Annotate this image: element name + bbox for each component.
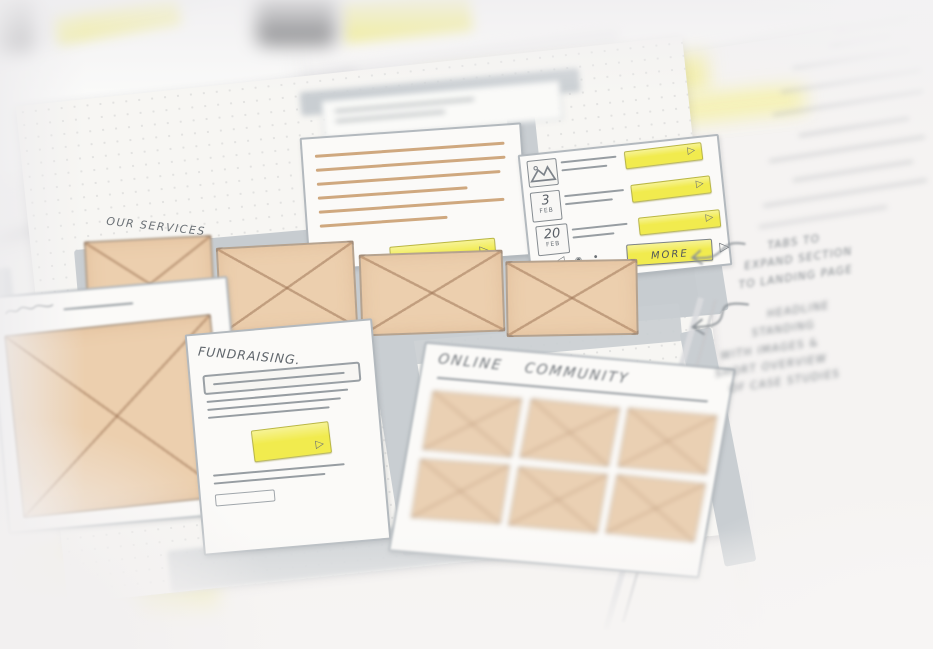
small-field-sketch [215, 489, 276, 506]
image-placeholder [359, 250, 506, 337]
community-panel: ONLINE COMMUNITY [388, 342, 736, 579]
sketch-line [213, 372, 345, 385]
event-date-badge: 3 FEB [530, 190, 563, 223]
sketch-line [561, 165, 607, 172]
grid-image-placeholder [411, 458, 510, 524]
text-placeholder-line [315, 142, 505, 158]
sketch-line [335, 111, 445, 123]
grid-image-placeholder [422, 390, 522, 457]
community-grid [406, 390, 717, 563]
logo-scribble [3, 301, 56, 317]
dark-blur-object [0, 0, 30, 50]
sketch-line [572, 232, 614, 238]
fundraising-title: FUNDRAISING. [198, 344, 302, 368]
margin-note-bottom: HEADLINE STANDING WITH IMAGES & SHORT OV… [732, 298, 841, 397]
text-placeholder-line [317, 170, 501, 186]
dark-blur-object [256, 0, 336, 44]
sketch-line [63, 302, 133, 310]
sketch-line [564, 189, 624, 197]
text-placeholder-line [320, 216, 448, 228]
sketch-line [335, 98, 475, 112]
highlighted-donate-button: ▷ [251, 421, 332, 462]
text-placeholder-line [318, 186, 468, 199]
grid-image-placeholder [508, 466, 608, 533]
image-placeholder [505, 259, 638, 337]
sketch-line [561, 156, 617, 164]
grid-image-placeholder [519, 398, 620, 467]
more-button-label: MORE [651, 248, 689, 262]
sketch-line [572, 223, 628, 231]
grid-image-placeholder [617, 408, 717, 475]
community-title: ONLINE COMMUNITY [437, 351, 631, 387]
photo-canvas: ▷ ▷ 3 FEB ▷ 20 FEB ▷ ◁ ◉ • [0, 0, 933, 649]
text-placeholder-line [319, 198, 505, 214]
arrow-right-icon: ▷ [705, 212, 714, 224]
event-date-badge: 20 FEB [535, 223, 570, 256]
grid-image-placeholder [605, 474, 706, 543]
highlighted-button: ▷ [624, 142, 704, 169]
image-placeholder-icon [526, 158, 559, 188]
text-placeholder-line [316, 156, 506, 172]
highlighted-button: ▷ [630, 175, 712, 203]
fundraising-panel: FUNDRAISING. ▷ [185, 318, 392, 556]
arrow-right-icon: ▷ [695, 178, 704, 190]
sketch-line [565, 198, 613, 205]
annotation-arrow [685, 234, 751, 274]
highlighted-button: ▷ [638, 209, 721, 235]
arrow-right-icon: ▷ [315, 437, 325, 451]
arrow-right-icon: ▷ [687, 145, 696, 157]
